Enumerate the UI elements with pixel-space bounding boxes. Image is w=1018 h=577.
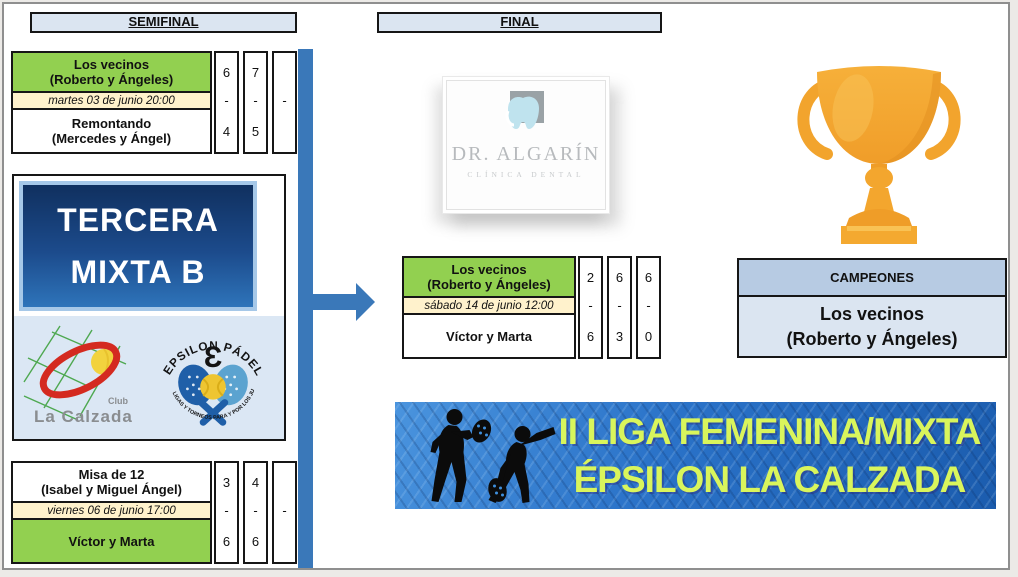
group-title-line1: TERCERA xyxy=(57,194,219,246)
score-separator: - xyxy=(216,91,237,110)
final-header: FINAL xyxy=(377,12,662,33)
match-teams-column: Misa de 12 (Isabel y Miguel Ángel) viern… xyxy=(11,461,212,564)
score-cell xyxy=(274,53,295,91)
window-frame: SEMIFINAL FINAL Los vecinos (Roberto y Á… xyxy=(0,0,1018,577)
team-players: (Mercedes y Ángel) xyxy=(52,131,171,146)
score-separator: - xyxy=(245,91,266,110)
schedule-text: viernes 06 de junio 17:00 xyxy=(47,505,176,517)
score-cell: 6 xyxy=(580,315,601,357)
match-teams-column: Los vecinos (Roberto y Ángeles) martes 0… xyxy=(11,51,212,154)
set1-score-column: 6 - 4 xyxy=(214,51,239,154)
score-cell: 6 xyxy=(609,258,630,296)
score-separator: - xyxy=(274,501,295,520)
team-row-winner: Víctor y Marta xyxy=(13,520,210,562)
team-players: (Roberto y Ángeles) xyxy=(50,72,174,87)
score-separator: - xyxy=(216,501,237,520)
score-cell: 3 xyxy=(216,463,237,501)
set2-score-column: 4 - 6 xyxy=(243,461,268,564)
score-cell: 4 xyxy=(245,463,266,501)
set3-score-column: 6 - 0 xyxy=(636,256,661,359)
team-row: Misa de 12 (Isabel y Miguel Ángel) xyxy=(13,463,210,501)
tooth-icon xyxy=(502,89,550,137)
padel-players-silhouette-icon xyxy=(397,404,572,506)
trophy-icon xyxy=(789,54,969,254)
score-cell: 3 xyxy=(609,315,630,357)
score-cell xyxy=(274,110,295,152)
schedule-text: sábado 14 de junio 12:00 xyxy=(424,300,553,312)
champions-team-players: (Roberto y Ángeles) xyxy=(786,327,957,352)
score-cell: 7 xyxy=(245,53,266,91)
score-separator: - xyxy=(580,296,601,315)
score-cell: 6 xyxy=(216,53,237,91)
score-cell: 6 xyxy=(638,258,659,296)
match-teams-column: Los vecinos (Roberto y Ángeles) sábado 1… xyxy=(402,256,576,359)
team-name: Víctor y Marta xyxy=(446,329,532,344)
la-calzada-logo: Club La Calzada xyxy=(22,324,146,430)
score-separator: - xyxy=(609,296,630,315)
la-calzada-name-text: La Calzada xyxy=(34,407,133,426)
set2-score-column: 7 - 5 xyxy=(243,51,268,154)
team-players: (Roberto y Ángeles) xyxy=(427,277,551,292)
score-cell xyxy=(274,520,295,562)
score-cell xyxy=(274,463,295,501)
champions-box: CAMPEONES Los vecinos (Roberto y Ángeles… xyxy=(737,258,1007,358)
score-separator: - xyxy=(274,91,295,110)
score-cell: 6 xyxy=(216,520,237,562)
score-cell: 0 xyxy=(638,315,659,357)
match-final: Los vecinos (Roberto y Ángeles) sábado 1… xyxy=(402,256,661,359)
banner-title: II LIGA FEMENINA/MIXTA ÉPSILON LA CALZAD… xyxy=(547,402,992,509)
set1-score-column: 3 - 6 xyxy=(214,461,239,564)
dental-tagline-text: CLÍNICA DENTAL xyxy=(467,170,584,179)
team-row: Víctor y Marta xyxy=(404,315,574,357)
schedule-row: viernes 06 de junio 17:00 xyxy=(13,501,210,520)
team-name: Los vecinos xyxy=(74,57,149,72)
champions-body: Los vecinos (Roberto y Ángeles) xyxy=(739,297,1005,356)
league-banner: II LIGA FEMENINA/MIXTA ÉPSILON LA CALZAD… xyxy=(395,402,996,509)
bracket-arrow-body xyxy=(313,294,356,310)
bracket-sheet: SEMIFINAL FINAL Los vecinos (Roberto y Á… xyxy=(2,2,1010,570)
epsilon-padel-logo: EPSILON PÁDEL Ɛ LIGAS Y TORNEOS PARA Y P… xyxy=(154,320,272,438)
score-separator: - xyxy=(245,501,266,520)
epsilon-symbol: Ɛ xyxy=(204,341,222,374)
match-semifinal-2: Misa de 12 (Isabel y Miguel Ángel) viern… xyxy=(11,461,297,564)
group-title-line2: MIXTA B xyxy=(71,246,206,298)
score-cell: 6 xyxy=(245,520,266,562)
bracket-connector-bar xyxy=(298,49,313,569)
set1-score-column: 2 - 6 xyxy=(578,256,603,359)
la-calzada-club-text: Club xyxy=(108,396,128,406)
score-cell: 4 xyxy=(216,110,237,152)
group-title-box: TERCERA MIXTA B xyxy=(19,181,257,311)
team-name: Misa de 12 xyxy=(79,467,145,482)
champions-header: CAMPEONES xyxy=(739,260,1005,297)
team-row: Remontando (Mercedes y Ángel) xyxy=(13,110,210,152)
semifinal-header: SEMIFINAL xyxy=(30,12,297,33)
dental-sponsor-logo: DR. ALGARÍN CLÍNICA DENTAL xyxy=(442,76,610,214)
schedule-text: martes 03 de junio 20:00 xyxy=(48,95,175,107)
schedule-row: sábado 14 de junio 12:00 xyxy=(404,296,574,315)
score-separator: - xyxy=(638,296,659,315)
team-row-winner: Los vecinos (Roberto y Ángeles) xyxy=(13,53,210,91)
dental-name-text: DR. ALGARÍN xyxy=(452,143,601,166)
score-cell: 2 xyxy=(580,258,601,296)
champions-team-name: Los vecinos xyxy=(820,302,924,327)
set3-score-column: - xyxy=(272,461,297,564)
team-name: Víctor y Marta xyxy=(69,534,155,549)
score-cell: 5 xyxy=(245,110,266,152)
team-row-winner: Los vecinos (Roberto y Ángeles) xyxy=(404,258,574,296)
team-name: Los vecinos xyxy=(451,262,526,277)
set2-score-column: 6 - 3 xyxy=(607,256,632,359)
team-name: Remontando xyxy=(72,116,151,131)
bracket-arrow-icon xyxy=(356,283,375,321)
set3-score-column: - xyxy=(272,51,297,154)
team-players: (Isabel y Miguel Ángel) xyxy=(41,482,182,497)
schedule-row: martes 03 de junio 20:00 xyxy=(13,91,210,110)
match-semifinal-1: Los vecinos (Roberto y Ángeles) martes 0… xyxy=(11,51,297,154)
banner-title-line1: II LIGA FEMENINA/MIXTA xyxy=(547,408,992,456)
group-panel: TERCERA MIXTA B Club La Calzada EPSILON … xyxy=(12,174,286,441)
banner-title-line2: ÉPSILON LA CALZADA xyxy=(547,456,992,504)
